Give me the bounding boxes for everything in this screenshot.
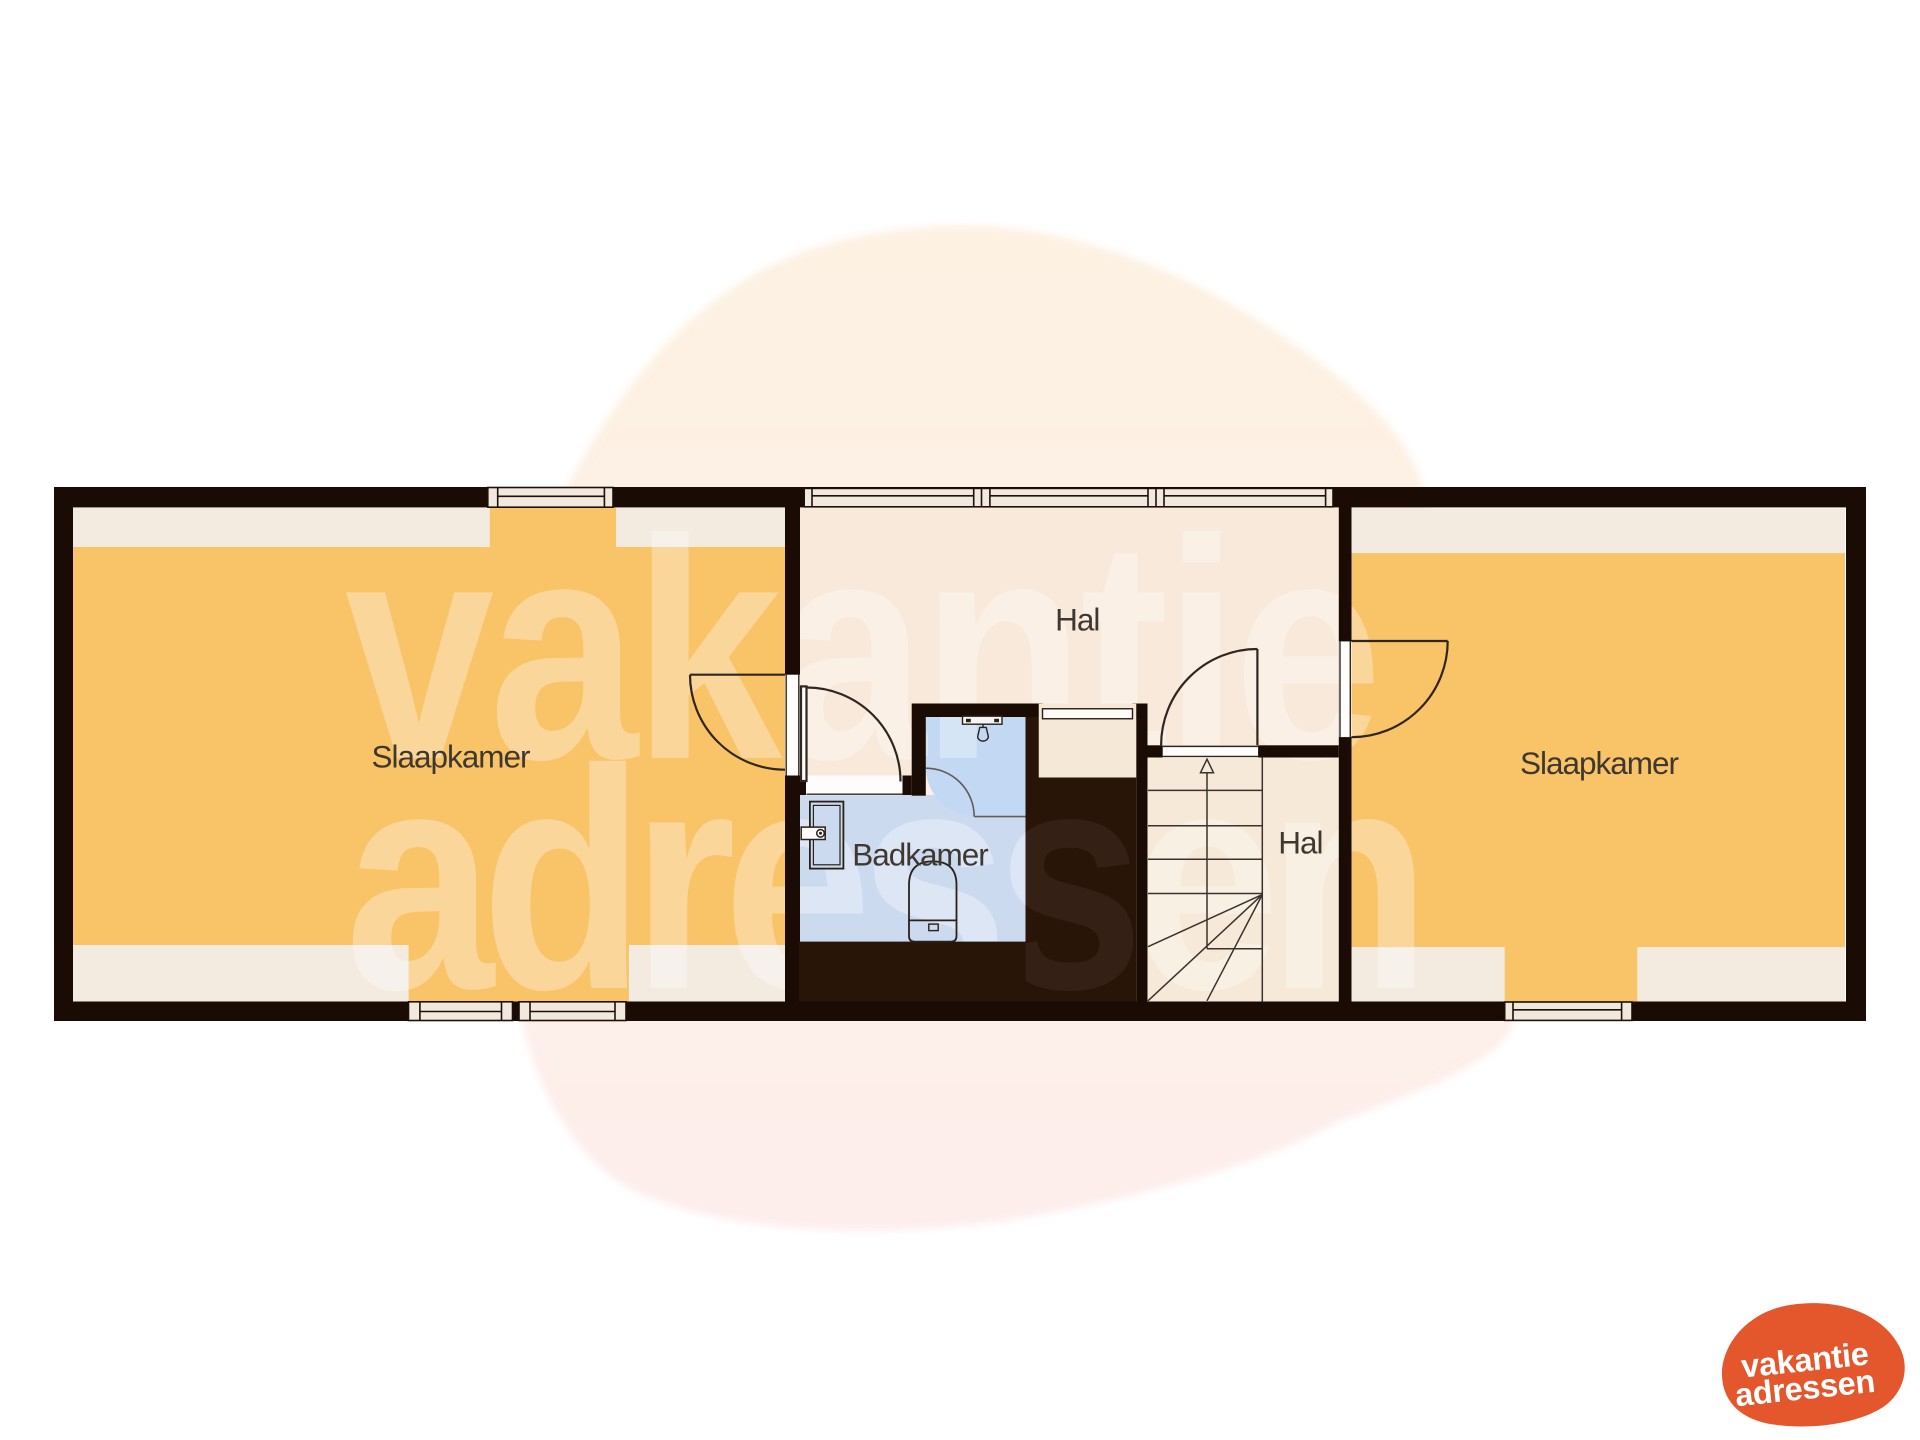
svg-text:Badkamer: Badkamer (852, 836, 988, 872)
svg-text:Hal: Hal (1278, 825, 1322, 861)
svg-text:Slaapkamer: Slaapkamer (1520, 745, 1679, 781)
svg-text:Slaapkamer: Slaapkamer (371, 739, 530, 775)
svg-text:Hal: Hal (1055, 602, 1099, 638)
